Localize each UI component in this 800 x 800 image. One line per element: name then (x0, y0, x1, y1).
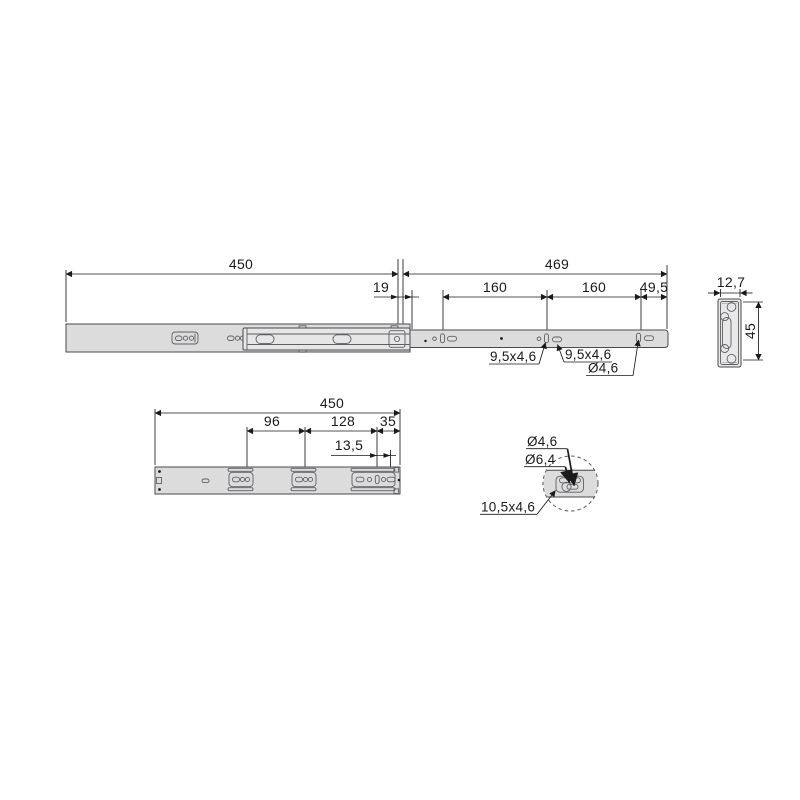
section-height-dimension: 45 (742, 302, 763, 360)
intermediate-member-rail (243, 326, 410, 352)
arrowhead (370, 453, 377, 458)
rivet-dot (158, 470, 161, 473)
detail-hole-large-label: Ø6,4 (525, 452, 556, 467)
top-view-extended-slide: 450 469 19 160 160 49,5 (66, 256, 668, 376)
cabinet-member-rail (404, 330, 668, 348)
rivet-dot (500, 337, 503, 340)
bottom-view-closed-slide: 450 96 128 35 13,5 (155, 395, 400, 494)
cabinet-member-body (404, 330, 668, 348)
dimension-value-160-1: 160 (483, 279, 507, 295)
detail-rail-band (541, 470, 600, 498)
section-profile-outline (718, 299, 741, 367)
dimension-value-45: 45 (742, 323, 758, 339)
detail-slot-label: 10,5x4,6 (481, 500, 535, 515)
dimension-value-13-5: 13,5 (335, 437, 363, 453)
detail-callout-view: Ø4,6 Ø6,4 10,5x4,6 (480, 434, 600, 515)
dimension-value-469: 469 (545, 256, 569, 272)
rivet-dot (424, 340, 426, 342)
top-view-extension-lines (66, 259, 667, 333)
rivet-dot (158, 488, 161, 491)
dimension-value-450: 450 (320, 395, 344, 411)
dimension-value-49-5: 49,5 (640, 279, 668, 295)
dimension-value-128: 128 (331, 413, 355, 429)
top-view-dimensions: 450 469 19 160 160 49,5 (66, 256, 668, 299)
dimension-value-35: 35 (380, 413, 396, 429)
slide-technical-drawing: 450 469 19 160 160 49,5 (0, 0, 800, 800)
cross-section-view: 12,7 45 (708, 274, 763, 367)
detail-hole-small-label: Ø4,6 (527, 434, 557, 449)
arrowhead (405, 295, 412, 300)
slot-callout-1: 9,5x4,6 (490, 349, 536, 364)
rivet-dot (398, 479, 401, 482)
dimension-value-12-7: 12,7 (717, 274, 745, 290)
dimension-value-450: 450 (229, 256, 253, 272)
bottom-view-dimensions: 450 96 128 35 13,5 (155, 395, 400, 458)
detail-clipped-rail (541, 470, 600, 498)
dimension-value-19: 19 (373, 279, 389, 295)
arrowhead (384, 453, 391, 458)
section-width-dimension: 12,7 (708, 274, 753, 297)
intermediate-member-body (243, 328, 410, 350)
dimension-value-96: 96 (264, 413, 280, 429)
arrowhead (391, 295, 398, 300)
hole-callout: Ø4,6 (588, 361, 618, 376)
dimension-value-160-2: 160 (582, 279, 606, 295)
